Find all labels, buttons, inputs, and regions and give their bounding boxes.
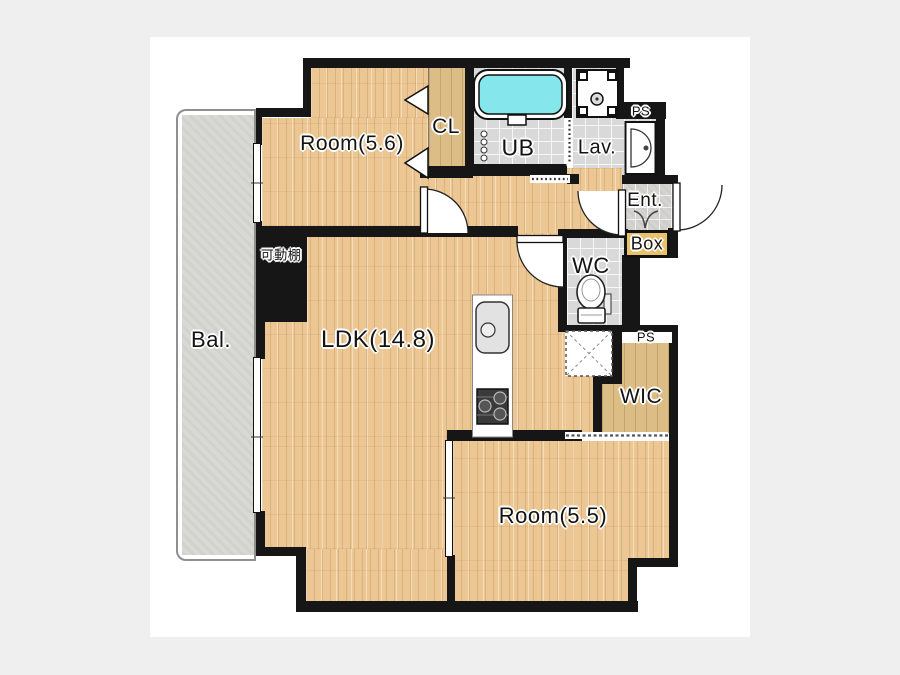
lavatory-label: Lav. (578, 137, 616, 160)
wall-segment (465, 164, 567, 176)
entrance-label: Ent. (627, 190, 663, 212)
wall-segment (296, 601, 638, 612)
wall-segment (303, 58, 311, 114)
ldk-label: LDK(14.8) (321, 326, 435, 354)
wic-label: WIC (620, 385, 662, 409)
wall-segment (420, 166, 473, 178)
room55-sliding-door (445, 440, 453, 557)
unit-bath-label: UB (502, 135, 535, 162)
wall-segment (656, 116, 665, 178)
ps-bottom-label: PS (637, 330, 655, 345)
wall-segment (558, 229, 628, 238)
wall-segment (256, 114, 262, 145)
wall-segment (593, 382, 602, 433)
wall-segment (611, 329, 622, 376)
wall-segment (256, 226, 518, 237)
wall-segment (669, 330, 678, 567)
ldk-window (253, 357, 261, 513)
ps-top-label: PS (632, 104, 650, 119)
balcony-label: Bal. (191, 327, 231, 353)
room56-floor (311, 68, 428, 118)
wall-segment (558, 237, 567, 329)
room56-label: Room(5.6) (300, 132, 404, 156)
ldk-floor (262, 437, 447, 549)
room55-floor (453, 561, 628, 605)
wall-segment (256, 108, 311, 117)
wall-segment (567, 174, 579, 184)
wall-segment (616, 58, 624, 106)
room55-label: Room(5.5) (499, 503, 607, 529)
movable-shelf-label: 可動棚 (261, 245, 302, 264)
movable-shelf-block (256, 228, 307, 322)
wc-label: WC (572, 253, 610, 279)
wall-segment (256, 322, 265, 359)
closet-label: CL (432, 115, 460, 139)
wall-segment (622, 175, 678, 184)
floorplan-image: Bal. Room(5.6) CL UB Lav. PS Ent. Box WC… (0, 0, 900, 675)
wall-segment (564, 58, 572, 118)
wall-segment (447, 430, 582, 441)
wc-floor (567, 237, 624, 327)
wall-segment (465, 58, 474, 168)
room56-window (253, 143, 261, 223)
wall-segment (447, 555, 455, 605)
box-label: Box (631, 234, 664, 255)
ldk-floor (306, 549, 447, 605)
wall-segment (622, 255, 640, 330)
room55-floor (453, 441, 670, 561)
